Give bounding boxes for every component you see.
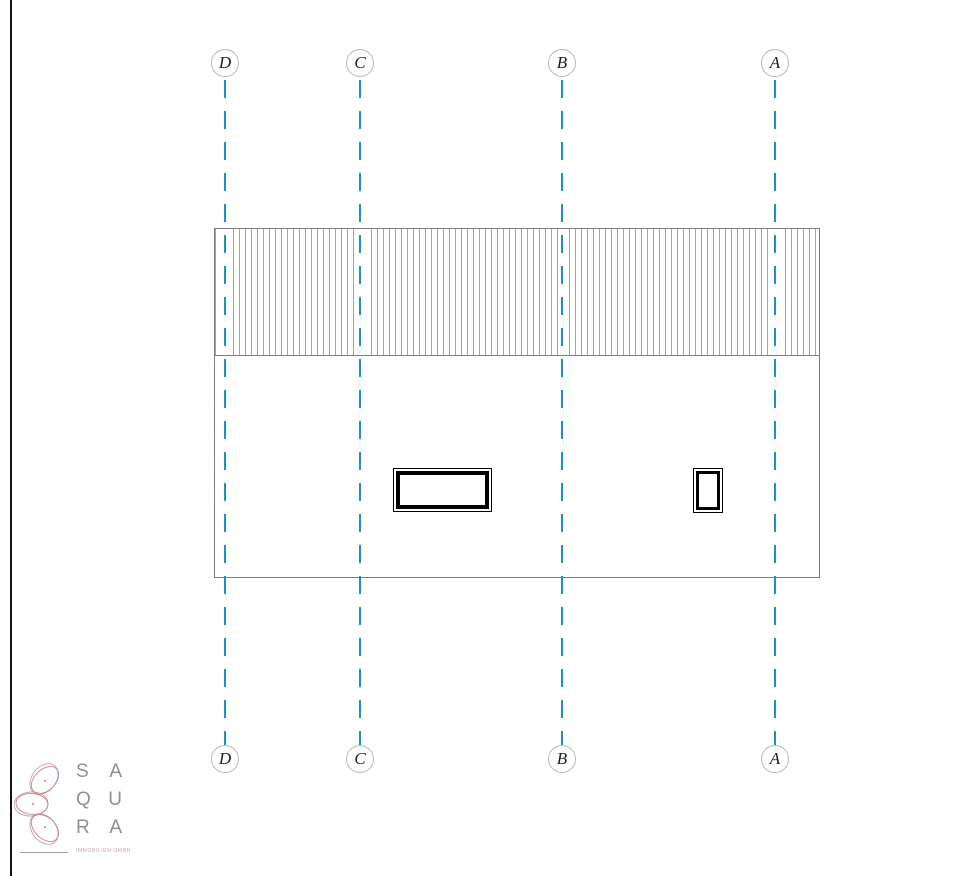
wordmark-letter: U	[108, 789, 122, 810]
grid-line-b	[561, 80, 563, 745]
wordmark-row-2: Q U	[76, 789, 122, 810]
wordmark-letter: S	[76, 761, 89, 782]
grid-label-b-bottom: B	[557, 749, 567, 769]
grid-line-d	[224, 80, 226, 745]
logo-tagline: IMMOBILIEN GMBH	[76, 848, 131, 854]
wordmark-letter: R	[76, 817, 90, 838]
grid-bubble-a-top: A	[761, 49, 789, 77]
hatch-gap-grid-b	[558, 229, 569, 355]
grid-bubble-b-top: B	[548, 49, 576, 77]
grid-bubble-b-bottom: B	[548, 745, 576, 773]
grid-line-c	[359, 80, 361, 745]
wordmark-row-3: R A	[76, 817, 122, 838]
grid-label-c: C	[354, 53, 365, 73]
logo-wordmark: S A Q U R A	[76, 761, 122, 838]
company-logo: S A Q U R A IMMOBILIEN GMBH	[12, 756, 147, 864]
grid-label-a: A	[770, 53, 780, 73]
wordmark-letter: A	[109, 761, 122, 782]
sheet-border-line	[10, 0, 12, 876]
grid-bubble-d-bottom: D	[211, 745, 239, 773]
grid-bubble-d-top: D	[211, 49, 239, 77]
grid-bubble-c-bottom: C	[346, 745, 374, 773]
wordmark-row-1: S A	[76, 761, 122, 782]
window-large	[393, 468, 492, 512]
wordmark-letter: A	[109, 817, 122, 838]
window-large-pane	[396, 471, 489, 509]
grid-label-a-bottom: A	[770, 749, 780, 769]
roof-hatch-band	[214, 228, 820, 356]
logo-divider-line	[20, 852, 68, 853]
grid-bubble-a-bottom: A	[761, 745, 789, 773]
wordmark-letter: Q	[76, 789, 91, 810]
grid-label-c-bottom: C	[354, 749, 365, 769]
grid-label-d-bottom: D	[219, 749, 231, 769]
grid-line-a	[774, 80, 776, 745]
grid-bubble-c-top: C	[346, 49, 374, 77]
wall-face	[214, 355, 820, 578]
flower-icon	[14, 760, 72, 850]
grid-label-b: B	[557, 53, 567, 73]
grid-label-d: D	[219, 53, 231, 73]
window-small-pane	[696, 471, 720, 510]
window-small	[693, 468, 723, 513]
